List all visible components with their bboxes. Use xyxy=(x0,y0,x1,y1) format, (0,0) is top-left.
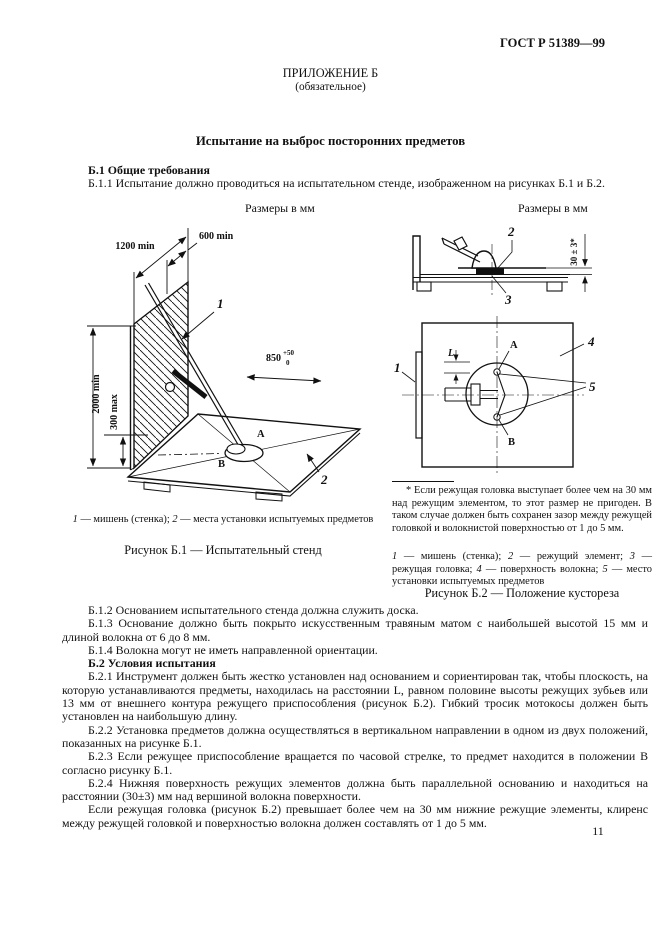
figure-b1-legend: 1 — мишень (стенка); 2 — места установки… xyxy=(60,514,386,527)
legend-num: 2 xyxy=(508,551,513,562)
legend-num: 1 xyxy=(73,514,78,525)
appendix-title: ПРИЛОЖЕНИЕ Б xyxy=(0,66,661,81)
figure-b1-caption: Рисунок Б.1 — Испытательный стенд xyxy=(60,543,386,558)
body-block: Б.1.2 Основанием испытательного стенда д… xyxy=(62,604,648,830)
legend-num: 2 xyxy=(172,514,177,525)
figure-b2-legend: 1 — мишень (стенка); 2 — режущий элемент… xyxy=(392,551,652,589)
clause-b12: Б.1.2 Основанием испытательного стенда д… xyxy=(62,604,648,617)
plan-view xyxy=(402,316,586,474)
section-b2-heading: Б.2 Условия испытания xyxy=(62,657,648,670)
point-b-label-plan: В xyxy=(508,437,515,448)
dim-2000: 2000 min xyxy=(91,374,102,414)
clause-b23: Б.2.3 Если режущее приспособление вращае… xyxy=(62,750,648,777)
legend-num: 1 xyxy=(392,551,397,562)
callout-1-wall: 1 xyxy=(217,296,224,311)
appendix-subtitle: (обязательное) xyxy=(0,81,661,93)
clause-b11: Б.1.1 Испытание должно проводиться на ис… xyxy=(62,177,648,190)
side-view xyxy=(413,234,592,296)
dim-850-sup: +50 xyxy=(283,349,294,357)
size-note-right: Размеры в мм xyxy=(518,201,588,216)
dim-300: 300 max xyxy=(109,394,120,430)
figure-b2-footnote: * Если режущая головка выступает более ч… xyxy=(392,485,652,535)
callout-2-cutting-element: 2 xyxy=(507,224,515,239)
clause-b24-cont: Если режущая головка (рисунок Б.2) превы… xyxy=(62,803,648,830)
section-b1-heading: Б.1 Общие требования xyxy=(62,164,648,177)
point-a-label: A xyxy=(257,429,265,440)
page-title: Испытание на выброс посторонних предмето… xyxy=(0,134,661,149)
dim-30-3: 30 ± 3* xyxy=(569,238,579,266)
dimension-lines xyxy=(87,228,321,468)
legend-num: 4 xyxy=(477,564,482,575)
dim-L: L xyxy=(447,348,454,359)
callout-5-object-position: 5 xyxy=(589,379,596,394)
figure-b2-caption: Рисунок Б.2 — Положение кустореза xyxy=(392,586,652,601)
dim-850: 850 xyxy=(266,353,281,364)
figure-b2-drawing: 2 3 30 ± 3* xyxy=(392,224,655,480)
callout-2-positions: 2 xyxy=(320,472,328,487)
legend-num: 3 xyxy=(630,551,635,562)
clause-b24: Б.2.4 Нижняя поверхность режущих элемент… xyxy=(62,777,648,804)
size-note-left: Размеры в мм xyxy=(245,201,315,216)
point-a-label-plan: A xyxy=(510,340,518,351)
clause-b21: Б.2.1 Инструмент должен быть жестко уста… xyxy=(62,670,648,723)
callout-1-wall-plan: 1 xyxy=(394,360,401,375)
dim-850-sub: 0 xyxy=(286,359,290,367)
clause-b13: Б.1.3 Основание должно быть покрыто иску… xyxy=(62,617,648,644)
footnote-rule xyxy=(392,481,454,482)
legend-num: 5 xyxy=(603,564,608,575)
clause-b14: Б.1.4 Волокна могут не иметь направленно… xyxy=(62,644,648,657)
clause-b22: Б.2.2 Установка предметов должна осущест… xyxy=(62,724,648,751)
doc-number: ГОСТ Р 51389—99 xyxy=(0,36,605,51)
page-number: 11 xyxy=(586,824,610,839)
figure-b1-drawing: A В 1200 min 600 min 2000 min 300 max 85… xyxy=(60,222,385,506)
intro-block: Б.1 Общие требования Б.1.1 Испытание дол… xyxy=(62,164,648,191)
dim-1200: 1200 min xyxy=(115,241,155,252)
callout-3-cutting-head: 3 xyxy=(504,292,512,307)
dim-600: 600 min xyxy=(199,231,234,242)
point-b-label: В xyxy=(218,459,225,470)
callout-4-fiber-surface: 4 xyxy=(587,334,595,349)
document-page: ГОСТ Р 51389—99 ПРИЛОЖЕНИЕ Б (обязательн… xyxy=(0,0,661,936)
